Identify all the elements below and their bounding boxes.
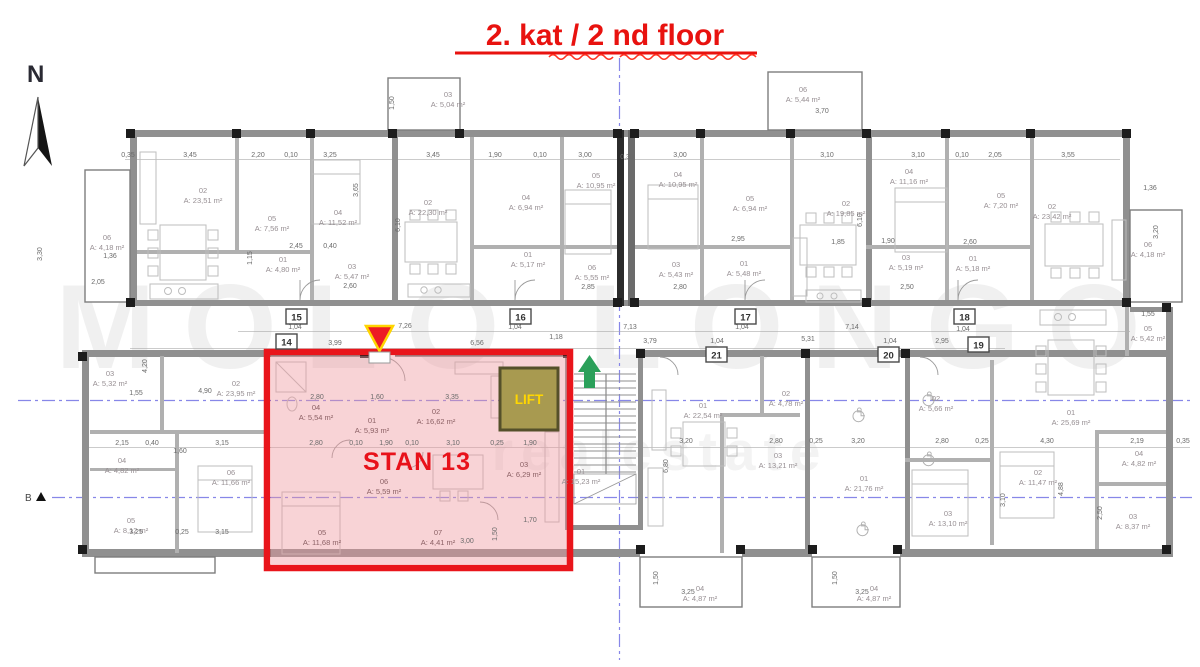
dimension-value: 1,36 [103, 253, 117, 260]
unit-number-box: 14 [276, 334, 297, 349]
dimension-value: 2,50 [1097, 506, 1104, 520]
dimension-value: 1,04 [956, 326, 970, 333]
wheelchair-icon [857, 522, 869, 536]
room-number: 06 [588, 263, 596, 272]
room-number: 01 [860, 474, 868, 483]
room-area: A: 25,69 m² [1052, 418, 1091, 427]
room-number: 07 [434, 528, 442, 537]
room-number: 02 [1048, 202, 1056, 211]
room-number: 04 [312, 403, 320, 412]
svg-text:15: 15 [291, 313, 302, 324]
dimension-value: 3,10 [1000, 493, 1007, 507]
room-number: 03 [902, 253, 910, 262]
dimension-value: 1,85 [831, 239, 845, 246]
dimension-value: 1,50 [492, 527, 499, 541]
room-number: 05 [1144, 324, 1152, 333]
room-area: A: 5,59 m² [367, 487, 402, 496]
lift: LIFT [500, 368, 558, 430]
room-number: 06 [380, 477, 388, 486]
page-title: 2. kat / 2 nd floor [455, 19, 757, 59]
dimension-value: 4,30 [1040, 438, 1054, 445]
room-number: 05 [268, 214, 276, 223]
dimension-value: 3,25 [129, 529, 143, 536]
room-number: 04 [696, 584, 704, 593]
room-area: A: 6,94 m² [509, 203, 544, 212]
section-marker-b: B [25, 492, 46, 504]
room-number: 02 [842, 199, 850, 208]
room-area: A: 5,54 m² [299, 413, 334, 422]
room-area: A: 5,19 m² [889, 263, 924, 272]
room-number: 03 [672, 260, 680, 269]
dimension-value: 7,14 [845, 324, 859, 331]
dimension-value: 1,55 [129, 390, 143, 397]
dimension-value: 2,60 [343, 283, 357, 290]
dimension-value: 2,05 [91, 279, 105, 286]
floor-plan-drawing: MOLO LONGO realestate 2. kat / 2 nd floo… [0, 0, 1200, 667]
room-number: 06 [227, 468, 235, 477]
room-area: A: 5,66 m² [919, 404, 954, 413]
room-area: A: 21,76 m² [845, 484, 884, 493]
room-area: A: 5,93 m² [355, 426, 390, 435]
room-area: A: 5,48 m² [727, 269, 762, 278]
dimension-value: 3,00 [578, 152, 592, 159]
room-area: A: 4,82 m² [105, 466, 140, 475]
room-number: 02 [199, 186, 207, 195]
room-area: A: 16,62 m² [417, 417, 456, 426]
room-area: A: 5,47 m² [335, 272, 370, 281]
dimension-value: 0,30 [620, 154, 634, 161]
room-number: 02 [1034, 468, 1042, 477]
dimension-value: 4,20 [142, 359, 149, 373]
lift-label: LIFT [515, 392, 544, 407]
dimension-value: 0,10 [405, 440, 419, 447]
dimension-value: 3,45 [183, 152, 197, 159]
room-number: 02 [932, 394, 940, 403]
dimension-value: 0,40 [323, 243, 337, 250]
section-marker-label: B [25, 493, 32, 504]
room-number: 04 [674, 170, 682, 179]
svg-text:17: 17 [740, 313, 751, 324]
dimension-value: 1,60 [173, 448, 187, 455]
dimension-value: 2,80 [310, 394, 324, 401]
dimension-value: 6,10 [857, 213, 864, 227]
room-area: A: 22,54 m² [684, 411, 723, 420]
dimension-value: 2,15 [115, 440, 129, 447]
unit-number-box: 21 [706, 347, 727, 362]
dimension-value: 0,10 [955, 152, 969, 159]
room-number: 04 [1135, 449, 1143, 458]
title-spellcheck-squiggle [620, 55, 756, 60]
unit-number-box: 16 [510, 309, 531, 324]
dimension-value: 2,20 [251, 152, 265, 159]
dimension-value: 1,04 [883, 338, 897, 345]
room-area: A: 11,47 m² [1019, 478, 1058, 487]
room-area: A: 4,18 m² [90, 243, 125, 252]
room-area: A: 4,78 m² [769, 399, 804, 408]
dimension-value: 3,00 [673, 152, 687, 159]
dimension-value: 0,10 [533, 152, 547, 159]
svg-text:14: 14 [281, 338, 292, 349]
dimension-value: 2,19 [1130, 438, 1144, 445]
room-number: 05 [318, 528, 326, 537]
room-area: A: 5,17 m² [511, 260, 546, 269]
svg-text:16: 16 [515, 313, 526, 324]
dimension-value: 0,25 [490, 440, 504, 447]
room-area: A: 15,23 m² [562, 477, 601, 486]
dimension-value: 4,88 [1058, 482, 1065, 496]
room-area: A: 11,66 m² [212, 478, 251, 487]
dining-table [1045, 212, 1103, 278]
room-area: A: 8,37 m² [1116, 522, 1151, 531]
room-number: 06 [1144, 240, 1152, 249]
room-number: 03 [1129, 512, 1137, 521]
dimension-value: 7,13 [623, 324, 637, 331]
dimension-value: 6,80 [663, 459, 670, 473]
dimension-value: 3,10 [446, 440, 460, 447]
room-number: 01 [740, 259, 748, 268]
room-area: A: 6,94 m² [733, 204, 768, 213]
bed [648, 185, 698, 249]
room-number: 01 [1067, 408, 1075, 417]
room-area: A: 5,44 m² [786, 95, 821, 104]
unit-number-box: 17 [735, 309, 756, 324]
dimension-value: 2,05 [988, 152, 1002, 159]
dimension-value: 3,25 [323, 152, 337, 159]
unit-number-box: 20 [878, 347, 899, 362]
room-area: A: 4,18 m² [1131, 250, 1166, 259]
dimension-value: 3,30 [37, 247, 44, 261]
dimension-value: 0,25 [175, 529, 189, 536]
dimension-value: 3,79 [643, 338, 657, 345]
room-number: 04 [905, 167, 913, 176]
dining-table [405, 210, 457, 274]
north-arrow: N [24, 61, 52, 166]
room-area: A: 23,42 m² [1033, 212, 1072, 221]
room-number: 06 [103, 233, 111, 242]
dimension-value: 3,65 [353, 183, 360, 197]
dimension-value: 1,15 [247, 251, 254, 265]
room-area: A: 13,10 m² [929, 519, 968, 528]
dimension-value: 0,40 [145, 440, 159, 447]
dimension-value: 1,50 [653, 571, 660, 585]
dimension-value: 2,95 [731, 236, 745, 243]
room-number: 02 [782, 389, 790, 398]
bed [895, 188, 947, 252]
dimension-value: 1,36 [1143, 185, 1157, 192]
title-spellcheck-squiggle [549, 55, 613, 60]
room-number: 03 [444, 90, 452, 99]
dimension-value: 3,10 [911, 152, 925, 159]
green-arrow-icon [584, 371, 595, 388]
dimension-value: 5,31 [801, 336, 815, 343]
room-area: A: 4,41 m² [421, 538, 456, 547]
dimension-value: 1,50 [832, 571, 839, 585]
room-number: 01 [524, 250, 532, 259]
dimension-value: 3,99 [328, 340, 342, 347]
dimension-value: 2,50 [900, 284, 914, 291]
room-number: 06 [799, 85, 807, 94]
dimension-value: 1,90 [488, 152, 502, 159]
unit-number-box: 19 [968, 337, 989, 352]
north-arrow-outline-half [24, 97, 38, 166]
room-number: 01 [368, 416, 376, 425]
dimension-value: 1,70 [523, 517, 537, 524]
dimension-value: 2,80 [673, 284, 687, 291]
room-number: 04 [334, 208, 342, 217]
room-area: A: 7,20 m² [984, 201, 1019, 210]
dimension-value: 1,04 [508, 324, 522, 331]
dimension-value: 0,25 [809, 438, 823, 445]
room-area: A: 5,55 m² [575, 273, 610, 282]
bed [565, 190, 611, 254]
room-area: A: 4,80 m² [266, 265, 301, 274]
room-area: A: 10,95 m² [659, 180, 698, 189]
dimension-value: 3,25 [855, 589, 869, 596]
room-area: A: 23,51 m² [184, 196, 223, 205]
sofa [140, 152, 156, 224]
room-number: 05 [997, 191, 1005, 200]
watermark: MOLO LONGO realestate [55, 260, 1168, 482]
svg-text:21: 21 [711, 351, 722, 362]
dimension-value: 2,80 [309, 440, 323, 447]
room-number: 03 [348, 262, 356, 271]
dimension-value: 2,45 [289, 243, 303, 250]
room-number: 05 [127, 516, 135, 525]
room-area: A: 13,21 m² [759, 461, 798, 470]
room-area: A: 11,52 m² [319, 218, 358, 227]
dimension-value: 3,15 [215, 529, 229, 536]
dimension-value: 1,60 [370, 394, 384, 401]
svg-text:18: 18 [959, 313, 970, 324]
room-area: A: 5,18 m² [956, 264, 991, 273]
svg-text:20: 20 [883, 351, 894, 362]
dimension-value: 6,10 [395, 218, 402, 232]
room-area: A: 10,95 m² [577, 181, 616, 190]
floor-plan-page: { "title": "2. kat / 2 nd floor", "compa… [0, 0, 1200, 667]
dimension-value: 3,10 [820, 152, 834, 159]
room-area: A: 11,16 m² [890, 177, 929, 186]
room-area: A: 6,29 m² [507, 470, 542, 479]
room-area: A: 11,68 m² [303, 538, 342, 547]
dimension-value: 3,15 [215, 440, 229, 447]
entrance-tag-box [369, 352, 390, 363]
room-number: 01 [969, 254, 977, 263]
dimension-value: 4,90 [198, 388, 212, 395]
room-number: 03 [520, 460, 528, 469]
room-number: 04 [522, 193, 530, 202]
north-arrow-filled-half [38, 97, 52, 166]
dimension-value: 2,80 [935, 438, 949, 445]
dimension-value: 1,18 [549, 334, 563, 341]
dimension-value: 2,95 [935, 338, 949, 345]
dimension-value: 2,60 [963, 239, 977, 246]
dimension-value: 0,10 [349, 440, 363, 447]
dimension-value: 0,35 [1176, 438, 1190, 445]
unit-number-box: 18 [954, 309, 975, 324]
dimension-value: 1,04 [735, 324, 749, 331]
dimension-value: 2,80 [769, 438, 783, 445]
room-number: 01 [699, 401, 707, 410]
dimension-value: 3,20 [1153, 225, 1160, 239]
dimension-value: 1,50 [389, 96, 396, 110]
room-area: A: 5,04 m² [431, 100, 466, 109]
unit-number-box: 15 [286, 309, 307, 324]
room-area: A: 5,32 m² [93, 379, 128, 388]
dimension-value: 1,90 [881, 238, 895, 245]
room-number: 02 [424, 198, 432, 207]
dining-table [800, 213, 856, 277]
dimension-value: 0,35 [121, 152, 135, 159]
room-area: A: 4,82 m² [1122, 459, 1157, 468]
dimension-value: 0,10 [284, 152, 298, 159]
room-number: 03 [106, 369, 114, 378]
room-area: A: 5,43 m² [659, 270, 694, 279]
room-number: 05 [746, 194, 754, 203]
section-marker-triangle-icon [36, 492, 46, 501]
dimension-value: 3,00 [460, 538, 474, 545]
dimension-value: 3,70 [815, 108, 829, 115]
room-number: 04 [118, 456, 126, 465]
room-number: 01 [279, 255, 287, 264]
north-label: N [27, 61, 44, 88]
room-number: 05 [592, 171, 600, 180]
dimension-value: 3,25 [681, 589, 695, 596]
dimension-value: 0,25 [975, 438, 989, 445]
room-number: 03 [774, 451, 782, 460]
dimension-value: 3,55 [1061, 152, 1075, 159]
dimension-value: 1,90 [379, 440, 393, 447]
dimension-value: 2,85 [581, 284, 595, 291]
dimension-value: 3,35 [445, 394, 459, 401]
svg-text:19: 19 [973, 341, 984, 352]
stan13-label: STAN 13 [363, 448, 471, 476]
dimension-value: 6,56 [470, 340, 484, 347]
wheelchair-icon [853, 408, 865, 422]
dimension-value: 1,90 [523, 440, 537, 447]
room-area: A: 23,95 m² [217, 389, 256, 398]
room-number: 02 [232, 379, 240, 388]
room-number: 02 [432, 407, 440, 416]
room-area: A: 5,42 m² [1131, 334, 1166, 343]
page-title-text: 2. kat / 2 nd floor [486, 19, 725, 52]
room-number: 03 [944, 509, 952, 518]
dimension-value: 1,55 [1141, 311, 1155, 318]
bed [198, 466, 252, 532]
dimension-value: 3,20 [679, 438, 693, 445]
wheelchair-icons [853, 392, 935, 536]
room-area: A: 7,56 m² [255, 224, 290, 233]
dimension-value: 1,04 [288, 324, 302, 331]
room-number: 04 [870, 584, 878, 593]
dimension-value: 3,20 [851, 438, 865, 445]
dimension-value: 7,26 [398, 323, 412, 330]
dimension-value: 3,45 [426, 152, 440, 159]
room-area: A: 22,30 m² [409, 208, 448, 217]
room-number: 01 [577, 467, 585, 476]
dimension-value: 1,04 [710, 338, 724, 345]
